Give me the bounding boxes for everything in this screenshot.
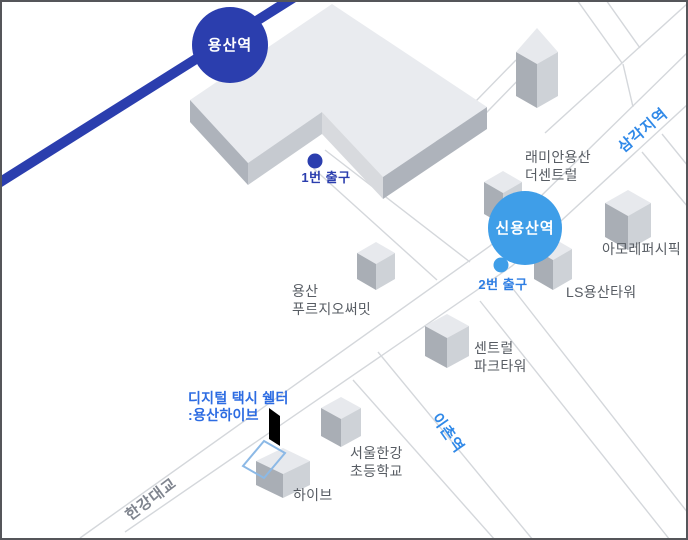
label-school-line1: 서울한강	[350, 445, 403, 461]
label-prugio-line1: 용산	[292, 283, 318, 299]
label-prugio-line2: 푸르지오써밋	[292, 301, 371, 317]
exit1-label: 1번 출구	[301, 170, 350, 185]
location-map: 용산역 신용산역 1번 출구 2번 출구 디지털 택시 쉘터 :용산하이브 삼각…	[0, 0, 688, 540]
label-central-line1: 센트럴	[474, 340, 514, 356]
label-raemian-line2: 더센트럴	[525, 167, 578, 183]
label-amore: 아모레퍼시픽	[602, 241, 681, 257]
label-ls-tower: LS용산타워	[566, 284, 636, 300]
label-raemian-line1: 래미안용산	[525, 149, 591, 165]
yongsan-station-label: 용산역	[208, 37, 252, 54]
poi-label-line1: 디지털 택시 쉘터	[188, 390, 289, 406]
label-hybe: 하이브	[293, 487, 333, 503]
poi-label-line2: :용산하이브	[188, 407, 259, 423]
label-school-line2: 초등학교	[350, 463, 403, 479]
exit2-dot[interactable]	[494, 258, 509, 273]
exit2-label: 2번 출구	[478, 277, 527, 292]
label-central-line2: 파크타워	[474, 358, 527, 374]
map-canvas: 용산역 신용산역 1번 출구 2번 출구 디지털 택시 쉘터 :용산하이브 삼각…	[0, 0, 688, 540]
sinyongsan-station-label: 신용산역	[495, 220, 554, 237]
exit1-dot[interactable]	[308, 154, 323, 169]
